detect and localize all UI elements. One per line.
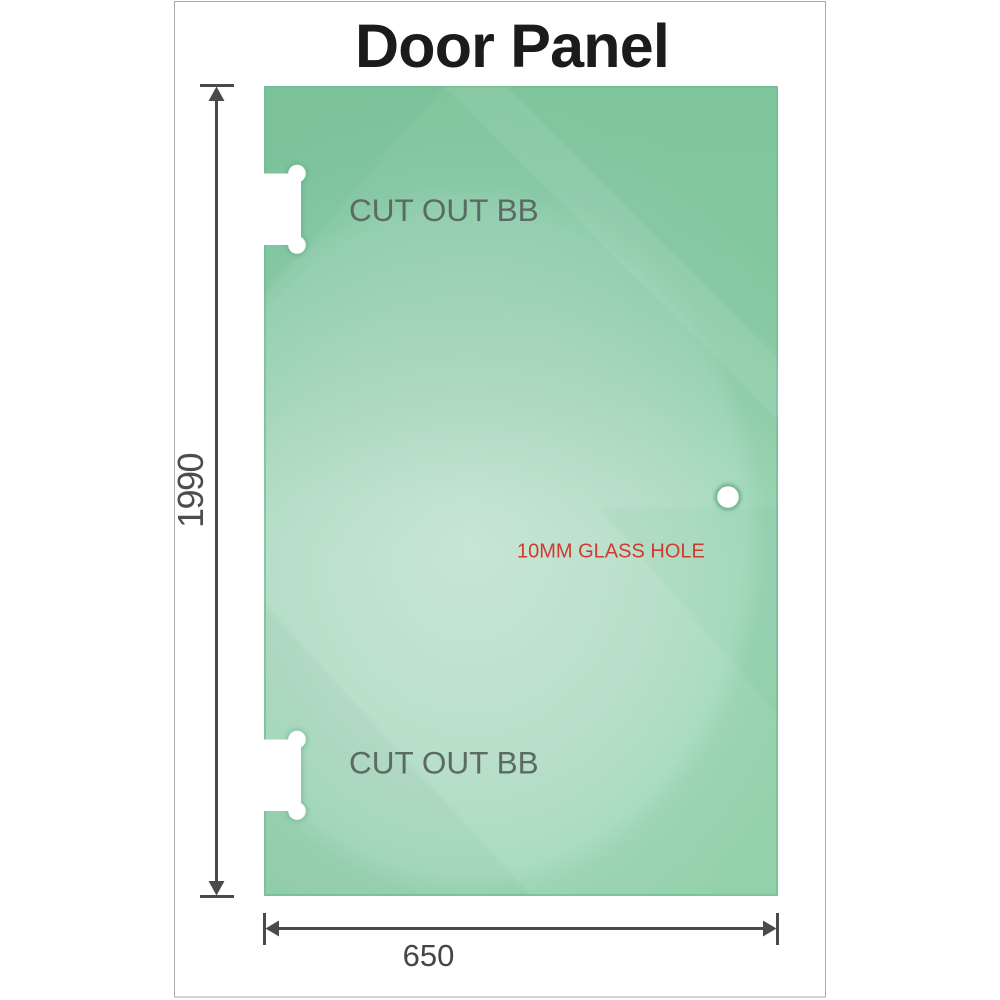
- svg-text:Door Panel: Door Panel: [355, 12, 669, 80]
- svg-text:CUT OUT BB: CUT OUT BB: [349, 745, 539, 781]
- svg-text:1990: 1990: [170, 453, 211, 528]
- svg-text:CUT OUT BB: CUT OUT BB: [349, 192, 539, 228]
- svg-text:650: 650: [403, 938, 455, 973]
- svg-text:10MM GLASS HOLE: 10MM GLASS HOLE: [517, 541, 705, 563]
